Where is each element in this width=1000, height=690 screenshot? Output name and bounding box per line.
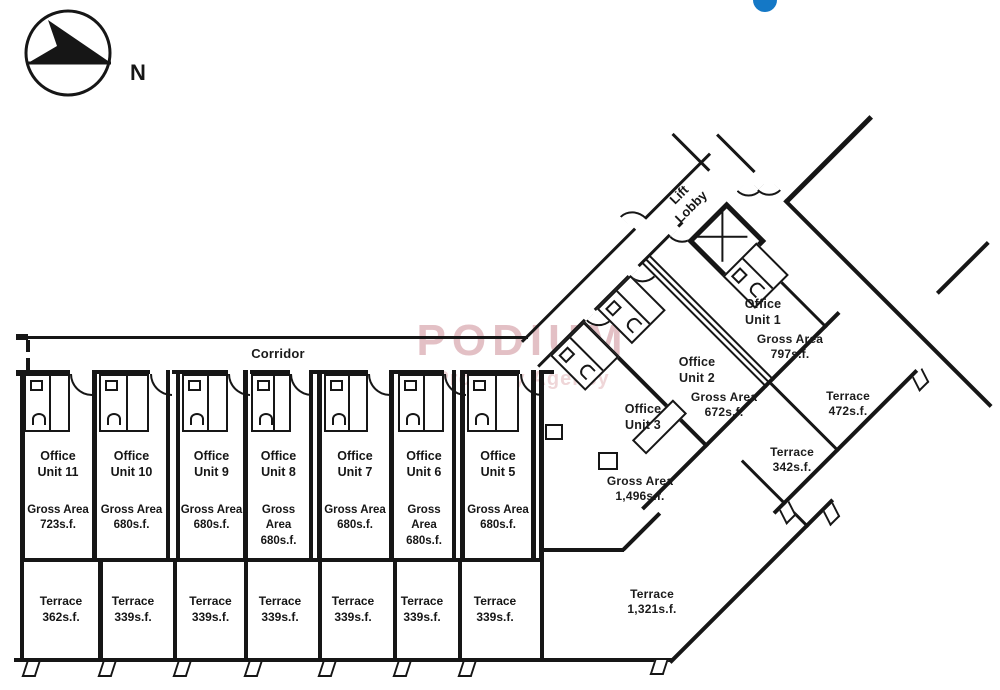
wall <box>544 548 624 552</box>
office-unit-3-label: OfficeUnit 3 <box>605 401 681 433</box>
terrace-label: Terrace362s.f. <box>24 593 98 625</box>
wall <box>936 241 990 295</box>
wall <box>26 358 30 370</box>
scupper <box>650 660 669 675</box>
wall <box>539 370 544 562</box>
unit-title: OfficeUnit 7 <box>322 448 388 481</box>
terrace-339-5: Terrace339s.f. <box>394 563 450 658</box>
office-unit-11: OfficeUnit 11 Gross Area723s.f. <box>24 370 92 560</box>
unit-title: OfficeUnit 10 <box>97 448 166 481</box>
unit-title: OfficeUnit 9 <box>180 448 243 481</box>
terrace-label: Terrace339s.f. <box>462 593 528 625</box>
terrace-339-1: Terrace339s.f. <box>100 563 166 658</box>
unit-title: OfficeUnit 8 <box>248 448 309 481</box>
office-unit-6: OfficeUnit 6 Gross Area680s.f. <box>396 370 452 560</box>
washroom <box>597 275 666 344</box>
terrace-342-label: Terrace342s.f. <box>754 445 830 476</box>
scupper <box>173 662 192 677</box>
scupper <box>22 662 41 677</box>
unit-area: Gross Area680s.f. <box>97 503 166 534</box>
terrace-label: Terrace339s.f. <box>322 593 384 625</box>
terrace-339-2: Terrace339s.f. <box>177 563 244 658</box>
office-unit-2-area: Gross Area672s.f. <box>682 390 766 421</box>
office-unit-5: OfficeUnit 5 Gross Area680s.f. <box>465 370 531 560</box>
unit-area: Gross Area680s.f. <box>465 503 531 534</box>
office-unit-3-area: Gross Area1,496s.f. <box>596 474 684 505</box>
terrace-label: Terrace339s.f. <box>248 593 312 625</box>
office-unit-1-label: OfficeUnit 1 <box>725 296 801 328</box>
unit-area: Gross Area680s.f. <box>180 503 243 534</box>
step-detail <box>598 452 618 470</box>
terrace-1321-label: Terrace1,321s.f. <box>610 587 694 618</box>
office-unit-9: OfficeUnit 9 Gross Area680s.f. <box>180 370 243 560</box>
unit-title: OfficeUnit 6 <box>396 448 452 481</box>
floor-plan: PODIUM Property Agency N Corridor <box>0 0 1000 690</box>
wall <box>309 370 313 562</box>
office-unit-7: OfficeUnit 7 Gross Area680s.f. <box>322 370 388 560</box>
scupper <box>244 662 263 677</box>
corridor-label: Corridor <box>228 346 328 363</box>
scupper <box>318 662 337 677</box>
terrace-339-3: Terrace339s.f. <box>248 563 312 658</box>
wall <box>716 134 756 174</box>
wall <box>531 370 536 562</box>
wall <box>166 370 170 562</box>
scupper <box>98 662 117 677</box>
wall <box>785 115 873 203</box>
plan-linework: Corridor <box>0 0 1000 690</box>
unit-area: Gross Area680s.f. <box>322 503 388 534</box>
door-arc <box>620 204 647 231</box>
wall <box>540 562 544 660</box>
wall <box>28 336 528 339</box>
lift-shaft-x <box>721 212 723 262</box>
terrace-label: Terrace339s.f. <box>100 593 166 625</box>
wall <box>669 498 834 663</box>
door-arc <box>757 179 781 203</box>
scupper <box>393 662 412 677</box>
unit-title: OfficeUnit 5 <box>465 448 531 481</box>
terrace-362: Terrace362s.f. <box>24 563 98 658</box>
unit-area: Gross Area723s.f. <box>24 503 92 534</box>
unit-title: OfficeUnit 11 <box>24 448 92 481</box>
office-unit-1-area: Gross Area797s.f. <box>748 332 832 363</box>
office-unit-2-label: OfficeUnit 2 <box>659 354 735 386</box>
terrace-label: Terrace339s.f. <box>394 593 450 625</box>
office-unit-8: OfficeUnit 8 Gross Area680s.f. <box>248 370 309 560</box>
unit-area: Gross Area680s.f. <box>396 503 452 550</box>
office-unit-10: OfficeUnit 10 Gross Area680s.f. <box>97 370 166 560</box>
washroom <box>550 322 619 391</box>
wall <box>389 370 394 562</box>
wall <box>622 512 662 552</box>
unit-area: Gross Area680s.f. <box>248 503 309 550</box>
terrace-472-label: Terrace472s.f. <box>810 389 886 420</box>
terrace-339-4: Terrace339s.f. <box>322 563 384 658</box>
step-detail <box>545 424 563 440</box>
scupper <box>458 662 477 677</box>
terrace-339-6: Terrace339s.f. <box>462 563 528 658</box>
terrace-label: Terrace339s.f. <box>177 593 244 625</box>
wall <box>783 199 992 408</box>
wall <box>26 340 30 352</box>
wall <box>452 370 456 562</box>
